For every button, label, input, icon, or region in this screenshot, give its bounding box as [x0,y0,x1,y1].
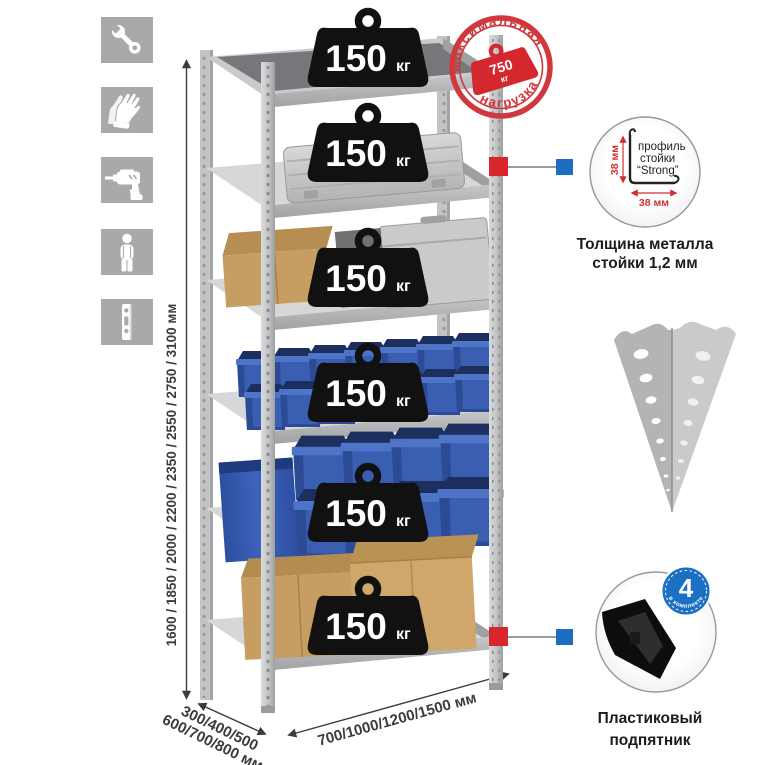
callout-bottom [489,627,573,646]
badge-value: 4 [679,573,694,603]
profile-label-2: стойки [640,153,675,165]
svg-text:150: 150 [325,606,387,647]
foot-caption-1: Пластиковый [598,710,703,727]
svg-text:кг: кг [396,153,411,170]
profile-caption-2: стойки 1,2 мм [592,255,697,272]
svg-text:150: 150 [325,258,387,299]
shelf-load-weight: 150 кг [308,12,429,88]
callout-red-marker [489,627,508,646]
dimension-height: 1600 / 1850 / 2000 / 2200 / 2350 / 2550 … [164,61,187,698]
callout-top [489,157,573,176]
svg-text:кг: кг [396,278,411,295]
callout-blue-marker [556,159,573,175]
blue-storage-box [219,457,300,562]
kit-count-badge: 4 в комплекте [662,567,711,616]
svg-text:кг: кг [396,626,411,643]
scene: 1600 / 1850 / 2000 / 2200 / 2350 / 2550 … [0,0,765,765]
dimension-depth: 300/400/500 600/700/800 мм [160,697,273,765]
svg-text:кг: кг [396,393,411,410]
load-value: 150 [325,38,387,79]
shelving-product-infographic: 1600 / 1850 / 2000 / 2200 / 2350 / 2550 … [0,0,765,765]
profile-label-3: “Strong” [637,165,679,177]
height-dimension-label: 1600 / 1850 / 2000 / 2200 / 2350 / 2550 … [164,304,179,647]
svg-text:150: 150 [325,133,387,174]
profile-label-1: профиль [638,141,686,153]
shelf-load-weight: 150 кг [308,107,429,183]
profile-detail: 38 мм 38 мм профиль стойки “Strong” Толщ… [577,117,714,272]
dimension-width: 700/1000/1200/1500 мм [289,674,508,750]
profile-dim-horizontal: 38 мм [639,197,669,209]
profile-dim-vertical: 38 мм [609,145,621,175]
callout-red-marker [489,157,508,176]
svg-text:кг: кг [396,513,411,530]
corner-post-image [614,322,736,512]
profile-caption-1: Толщина металла [577,236,714,253]
width-dimension-label: 700/1000/1200/1500 мм [316,689,479,749]
svg-text:150: 150 [325,493,387,534]
foot-detail: 4 в комплекте Пластиковый подпятник [596,567,716,750]
svg-text:150: 150 [325,373,387,414]
callout-blue-marker [556,629,573,645]
max-load-stamp: максимальная нагрузка 750 кг [435,0,566,129]
load-unit: кг [396,58,411,75]
foot-caption-2: подпятник [609,732,690,749]
